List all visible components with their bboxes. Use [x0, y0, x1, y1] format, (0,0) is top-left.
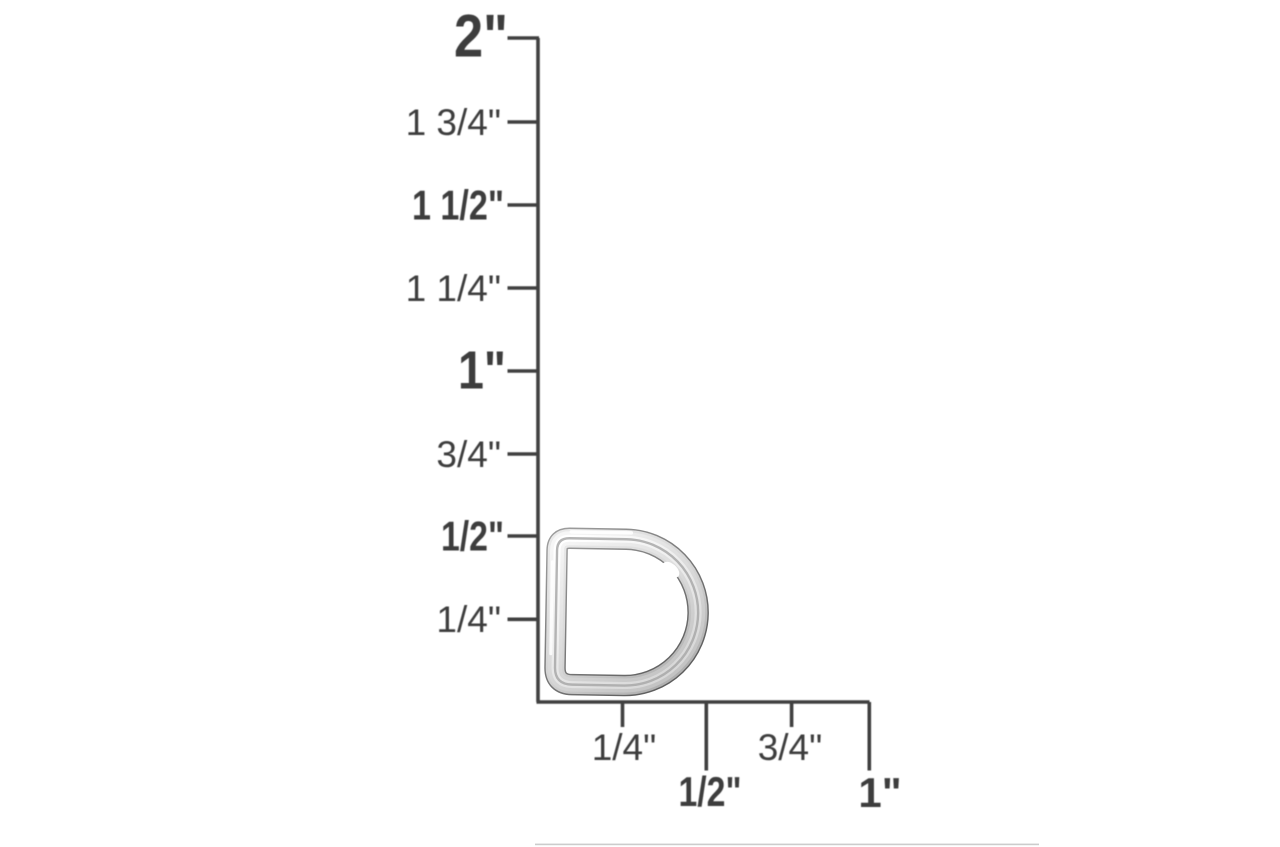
svg-text:1/4": 1/4" [592, 727, 657, 768]
svg-text:1": 1" [858, 769, 901, 816]
svg-text:1 1/2": 1 1/2" [412, 182, 504, 229]
svg-text:1/4": 1/4" [436, 599, 501, 640]
svg-text:1/2": 1/2" [679, 768, 742, 815]
svg-text:3/4": 3/4" [758, 727, 823, 768]
svg-text:3/4": 3/4" [436, 434, 501, 475]
svg-text:1 1/4": 1 1/4" [406, 268, 501, 309]
svg-text:1/2": 1/2" [441, 513, 504, 560]
svg-text:2": 2" [454, 3, 508, 70]
svg-text:1 3/4": 1 3/4" [406, 102, 501, 143]
svg-text:1": 1" [458, 341, 506, 401]
